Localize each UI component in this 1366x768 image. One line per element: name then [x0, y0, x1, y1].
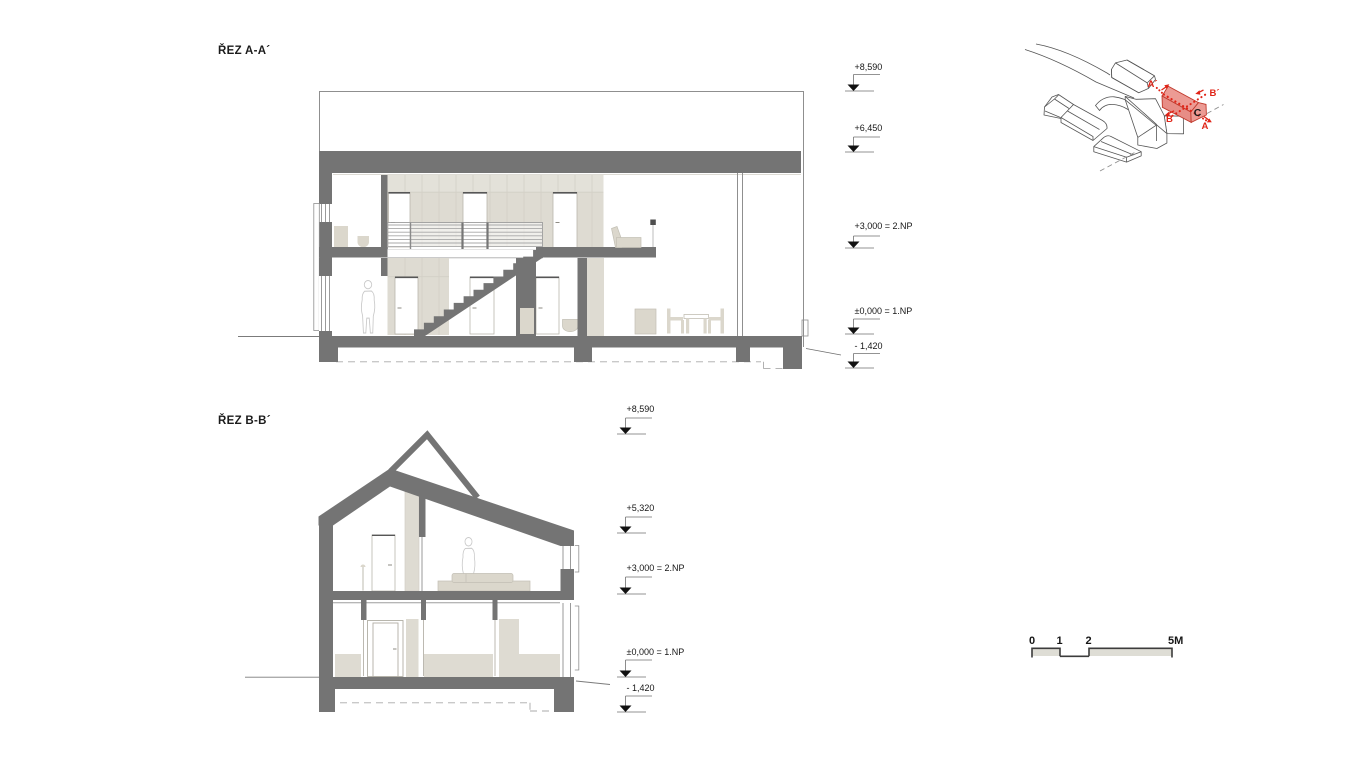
svg-text:C: C [1194, 107, 1202, 119]
svg-text:B: B [1166, 114, 1173, 125]
svg-text:A´: A´ [1148, 79, 1158, 90]
svg-text:+3,000 = 2.NP: +3,000 = 2.NP [855, 221, 913, 231]
svg-text:A: A [1202, 121, 1209, 132]
svg-text:- 1,420: - 1,420 [855, 341, 883, 351]
svg-text:0: 0 [1029, 635, 1035, 647]
svg-text:1: 1 [1057, 635, 1063, 647]
svg-text:+8,590: +8,590 [855, 62, 883, 72]
svg-text:±0,000 = 1.NP: ±0,000 = 1.NP [855, 306, 913, 316]
svg-text:±0,000 = 1.NP: ±0,000 = 1.NP [627, 647, 685, 657]
svg-text:+5,320: +5,320 [627, 503, 655, 513]
svg-text:+8,590: +8,590 [627, 404, 655, 414]
svg-text:B´: B´ [1210, 88, 1220, 99]
svg-text:2: 2 [1086, 635, 1092, 647]
svg-text:- 1,420: - 1,420 [627, 683, 655, 693]
svg-text:ŘEZ B-B´: ŘEZ B-B´ [218, 414, 271, 427]
svg-text:5M: 5M [1168, 635, 1183, 647]
svg-text:ŘEZ A-A´: ŘEZ A-A´ [218, 44, 270, 57]
svg-text:+3,000 = 2.NP: +3,000 = 2.NP [627, 563, 685, 573]
svg-text:+6,450: +6,450 [855, 123, 883, 133]
